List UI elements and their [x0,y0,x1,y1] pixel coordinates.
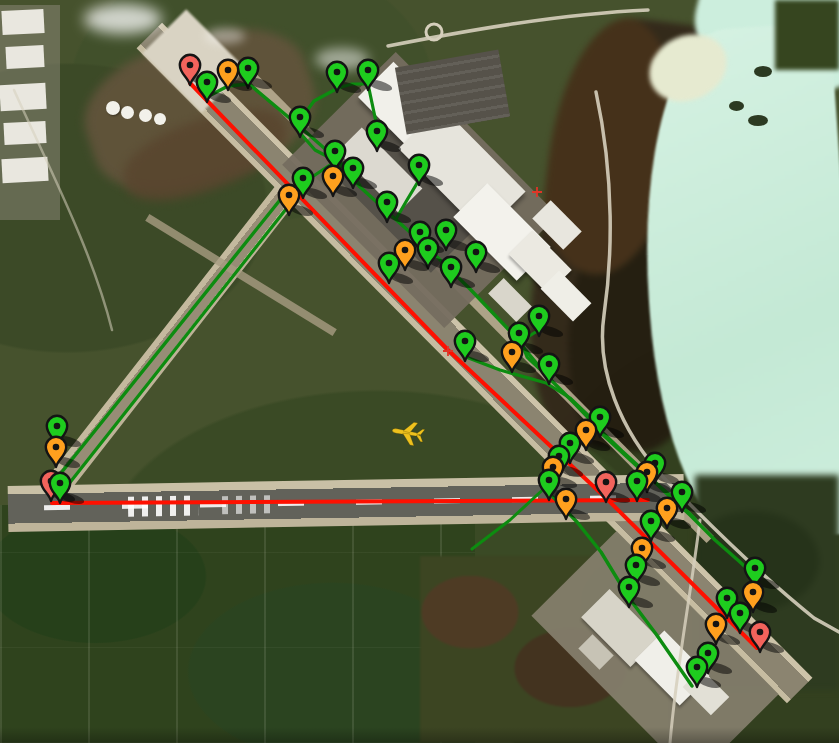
pin-center-dot [750,589,757,596]
map-marker-green[interactable] [290,107,325,140]
pin-center-dot [297,114,304,121]
pin-center-dot [330,173,337,180]
map-marker-green[interactable] [377,192,412,225]
pin-center-dot [705,650,712,657]
pin-center-dot [567,440,574,447]
pin-center-dot [334,69,341,76]
map-marker-green[interactable] [466,242,501,275]
pin-center-dot [384,199,391,206]
pin-center-dot [626,584,633,591]
route-line-red [190,83,757,648]
pin-center-dot [648,518,655,525]
pin-center-dot [57,480,64,487]
pin-center-dot [350,165,357,172]
access-road [670,520,700,743]
pin-center-dot [386,260,393,267]
pin-center-dot [332,148,339,155]
pin-center-dot [402,247,409,254]
pin-center-dot [473,249,480,256]
pin-center-dot [757,629,764,636]
pin-center-dot [563,496,570,503]
map-annotations [0,0,839,743]
map-marker-green[interactable] [367,121,402,154]
pin-center-dot [443,227,450,234]
map-marker-red[interactable] [750,622,785,655]
pin-center-dot [603,479,610,486]
pin-center-dot [53,444,60,451]
pin-center-dot [416,162,423,169]
pin-center-dot [225,67,232,74]
route-line-green [57,190,288,478]
pin-center-dot [536,313,543,320]
pin-center-dot [679,489,686,496]
map-marker-green[interactable] [358,60,393,93]
pin-center-dot [713,621,720,628]
map-marker-green[interactable] [343,158,378,191]
pin-center-dot [546,477,553,484]
west-trail [14,90,112,330]
pin-center-dot [546,361,553,368]
pin-center-dot [509,349,516,356]
pin-center-dot [597,414,604,421]
pin-center-dot [664,505,671,512]
airplane-icon[interactable] [390,419,426,447]
pin-center-dot [204,79,211,86]
pin-center-dot [633,562,640,569]
pin-center-dot [448,264,455,271]
pin-center-dot [737,610,744,617]
pin-center-dot [286,192,293,199]
satellite-map[interactable] [0,0,839,743]
pin-center-dot [724,595,731,602]
pin-center-dot [300,175,307,182]
pin-center-dot [583,427,590,434]
route-line-green [64,199,294,490]
pin-center-dot [187,62,194,69]
map-marker-orange[interactable] [556,489,591,522]
pin-center-dot [374,128,381,135]
pin-center-dot [694,664,701,671]
pin-center-dot [417,229,424,236]
pin-center-dot [639,545,646,552]
pin-center-dot [752,565,759,572]
pin-center-dot [245,65,252,72]
crosshair-icon [532,187,542,197]
pin-center-dot [634,478,641,485]
pin-center-dot [425,245,432,252]
pin-center-dot [516,330,523,337]
pin-center-dot [365,67,372,74]
pin-center-dot [462,338,469,345]
route-line-green [472,484,549,549]
pin-center-dot [54,423,61,430]
map-marker-green[interactable] [409,155,444,188]
